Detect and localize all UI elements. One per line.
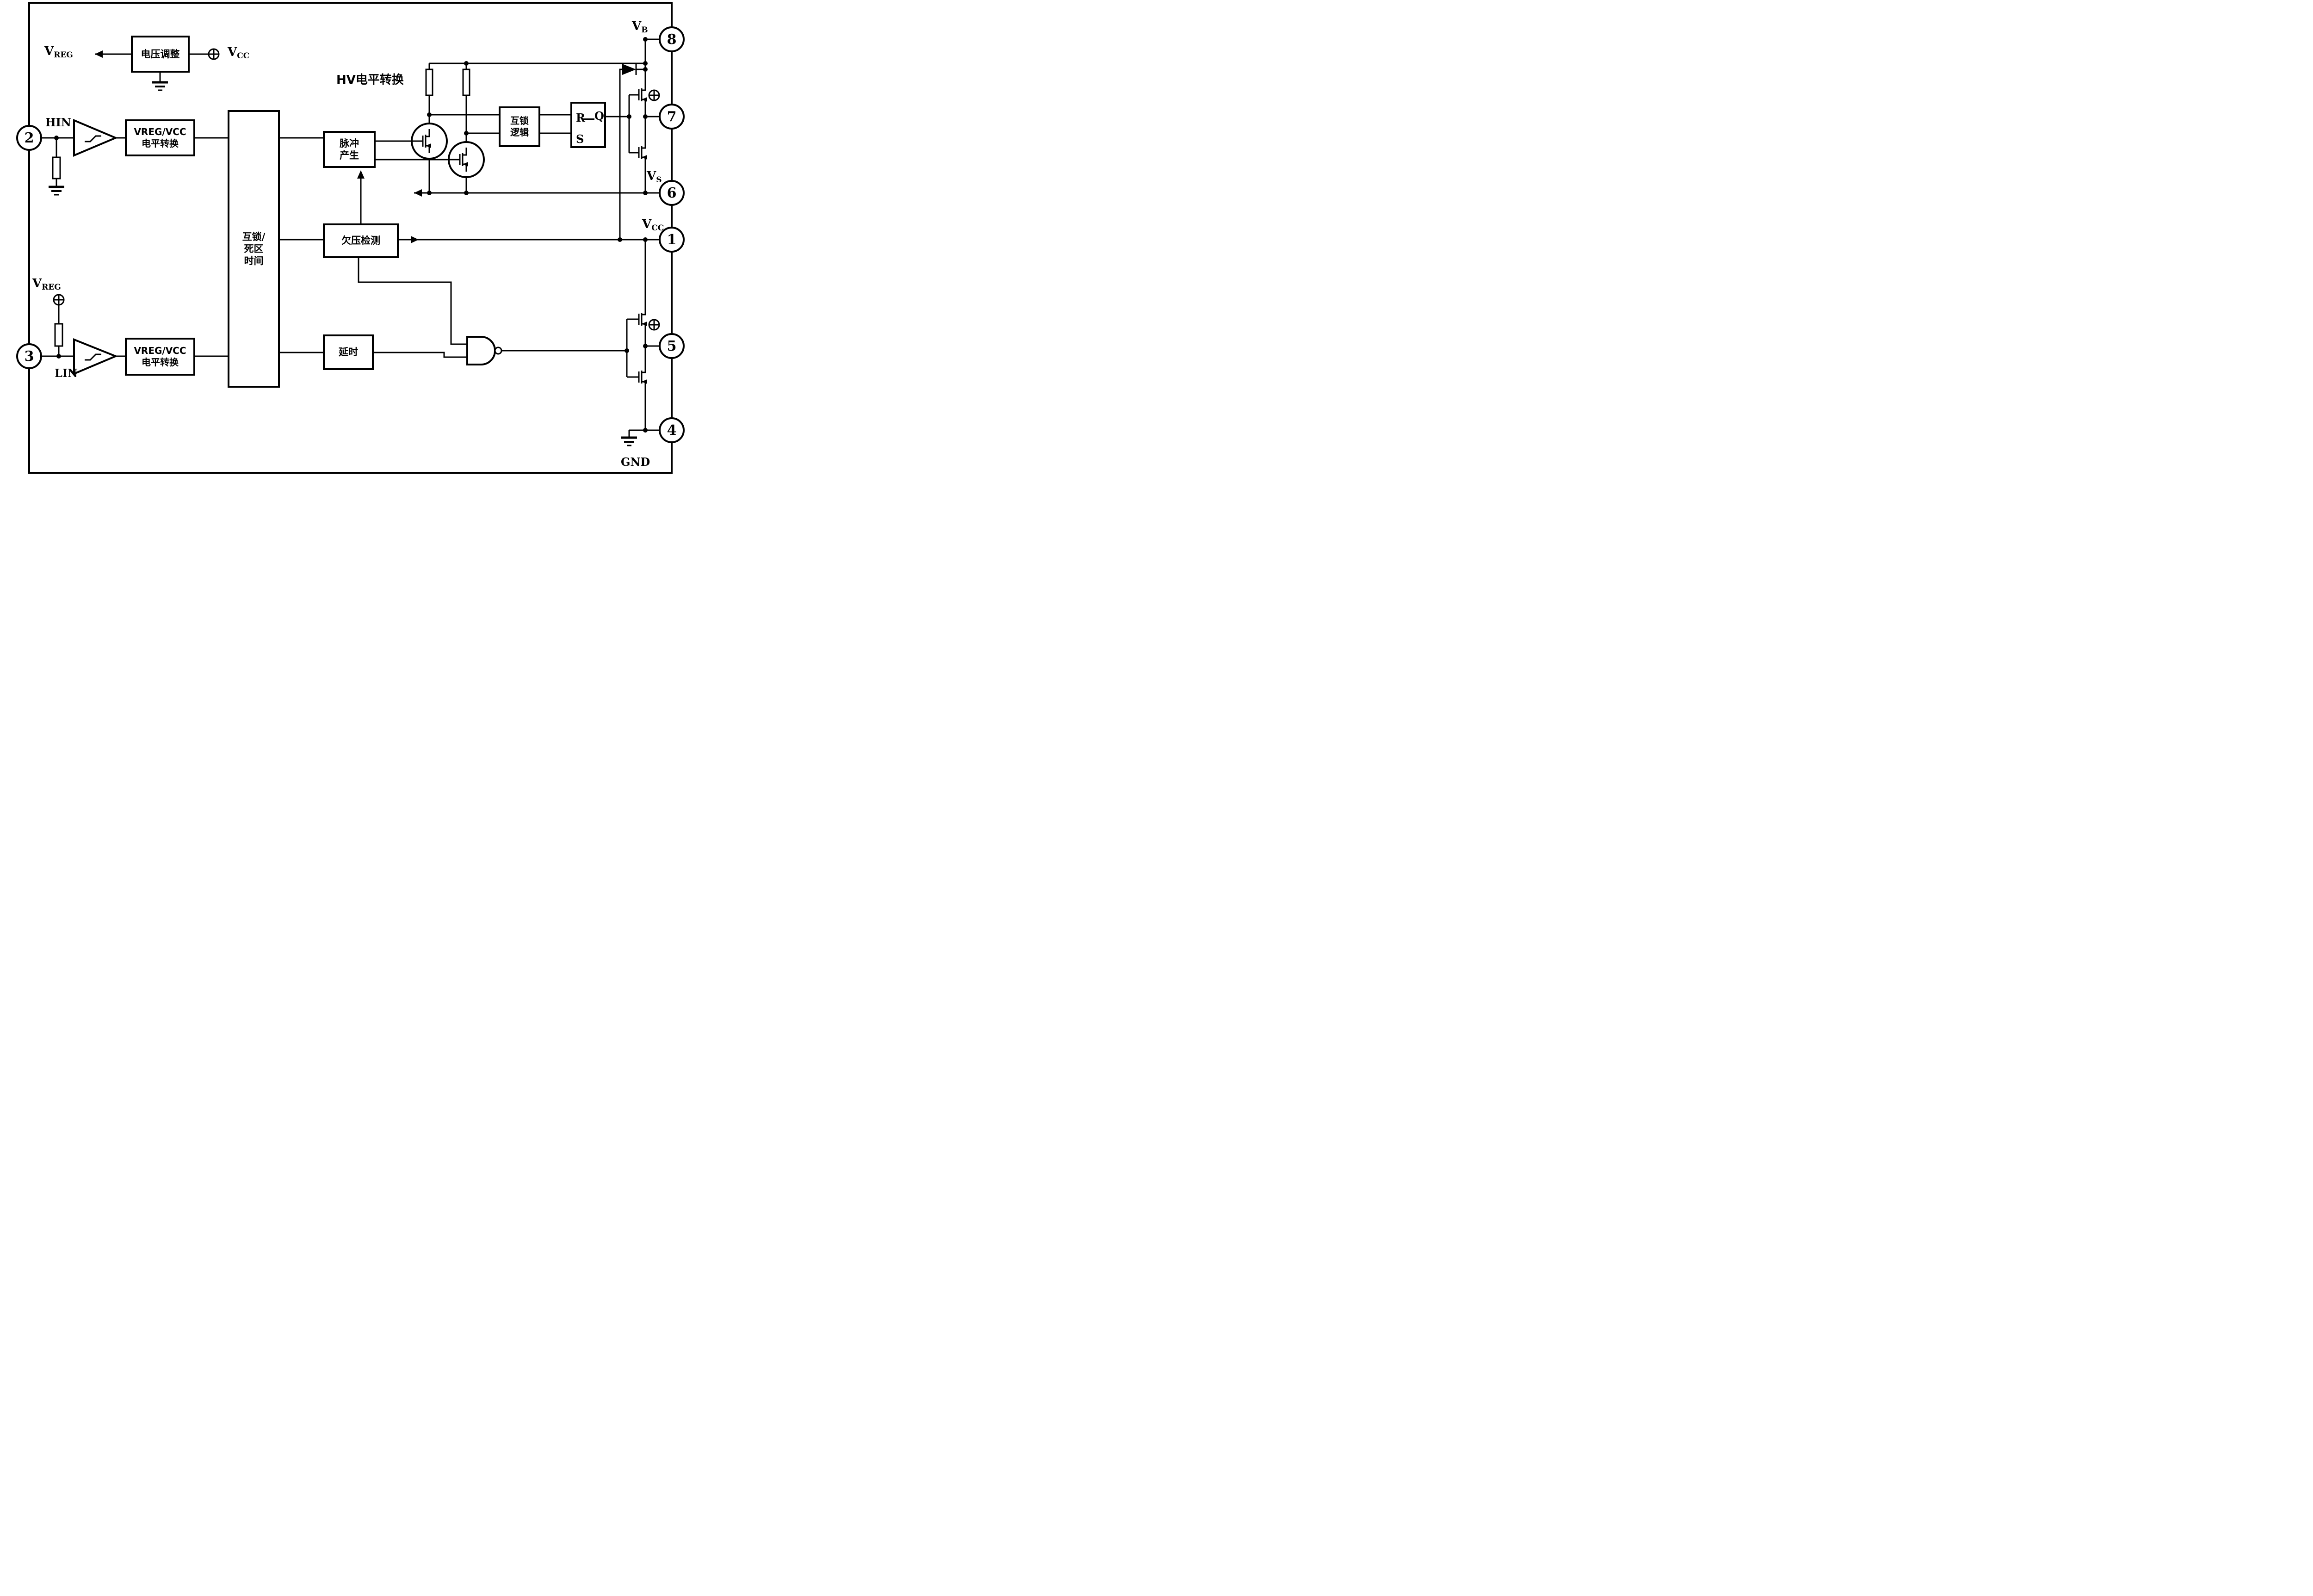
pin-number: 8 — [667, 31, 677, 48]
label-base: V — [32, 277, 42, 291]
pin-number: 1 — [667, 232, 677, 248]
label-base: V — [228, 45, 237, 59]
block-voltage-regulator: 电压调整 — [131, 36, 190, 73]
latch-q-label: Q — [594, 109, 604, 123]
label-sub: REG — [42, 283, 61, 292]
terminal-icon — [649, 320, 659, 330]
vcc-label-right: VCC — [642, 217, 664, 233]
label-sub: CC — [237, 51, 249, 61]
block-label: 脉冲 — [340, 137, 359, 149]
schmitt-trigger-icon — [74, 340, 116, 374]
label-sub: S — [656, 175, 662, 185]
arrowhead-icon — [414, 189, 422, 197]
pin-6: 6 — [659, 180, 685, 206]
block-rs-latch: R Q S — [570, 102, 606, 148]
vreg-label-left: VREG — [32, 277, 61, 292]
pin-number: 4 — [667, 422, 677, 439]
pin-3: 3 — [16, 343, 42, 369]
pin-number: 6 — [667, 185, 677, 201]
block-label: 互锁/ — [242, 231, 266, 243]
block-label: 产生 — [340, 149, 359, 161]
block-label: 时间 — [244, 255, 264, 267]
terminal-icon — [209, 49, 219, 59]
nand-gate-icon — [467, 337, 501, 365]
label-sub: B — [641, 25, 648, 35]
block-level-shift-top: VREG/VCC 电平转换 — [125, 119, 195, 156]
pin-number: 2 — [25, 130, 34, 146]
block-label: 互锁 — [510, 115, 529, 127]
wire — [629, 240, 660, 437]
block-label: 电平转换 — [142, 138, 179, 149]
pin-5: 5 — [659, 333, 685, 359]
pin-7: 7 — [659, 104, 685, 130]
pin-4: 4 — [659, 417, 685, 443]
block-interlock-deadtime: 互锁/ 死区 时间 — [228, 110, 280, 388]
block-pulse-generator: 脉冲 产生 — [323, 131, 376, 168]
diode-icon — [622, 64, 636, 75]
label-sub: REG — [54, 50, 73, 60]
pin-number: 7 — [667, 109, 677, 125]
mosfet-icon — [639, 141, 647, 165]
pin-8: 8 — [659, 26, 685, 52]
latch-s-label: S — [576, 132, 584, 146]
resistor-icon — [463, 69, 470, 95]
label-base: V — [642, 217, 651, 231]
arrowhead-icon — [357, 170, 365, 179]
wire — [414, 159, 660, 193]
block-label: 逻辑 — [510, 127, 529, 138]
wire — [359, 258, 467, 344]
label-base: V — [632, 19, 641, 33]
wire — [501, 319, 639, 377]
label-base: V — [44, 44, 54, 58]
mosfet-icon — [639, 365, 647, 389]
block-level-shift-bottom: VREG/VCC 电平转换 — [125, 338, 195, 376]
ground-icon — [621, 438, 637, 445]
vreg-label-top: VREG — [44, 44, 73, 60]
block-delay: 延时 — [323, 334, 374, 370]
resistor-icon — [53, 157, 60, 179]
ground-icon — [49, 187, 64, 195]
terminal-icon — [54, 295, 64, 305]
block-label: VREG/VCC — [134, 345, 186, 357]
wire — [429, 115, 499, 133]
pin-number: 3 — [25, 348, 34, 365]
terminal-icon — [649, 90, 659, 100]
block-diagram: 电压调整 VREG/VCC 电平转换 VREG/VCC 电平转换 互锁/ 死区 … — [0, 0, 725, 480]
block-label: 死区 — [244, 243, 264, 255]
lin-label: LIN — [55, 366, 78, 380]
label-base: V — [647, 169, 656, 183]
block-label: 电平转换 — [142, 357, 179, 368]
block-undervoltage-detect: 欠压检测 — [323, 223, 399, 258]
pin-number: 5 — [667, 338, 677, 354]
vs-label: VS — [647, 169, 662, 185]
block-label: VREG/VCC — [134, 126, 186, 138]
mosfet-icon — [639, 83, 647, 107]
hv-level-shift-note: HV电平转换 — [324, 70, 416, 87]
mosfet-icon — [639, 307, 647, 331]
schmitt-trigger-icon — [74, 120, 116, 155]
block-label: 欠压检测 — [341, 235, 380, 247]
arrowhead-icon — [95, 50, 103, 58]
ground-icon — [152, 82, 168, 90]
pin-2: 2 — [16, 125, 42, 151]
resistor-icon — [426, 69, 433, 95]
block-interlock-logic: 互锁 逻辑 — [499, 106, 540, 147]
latch-dash — [583, 118, 594, 120]
gnd-label: GND — [621, 455, 650, 469]
latch-r-label: R — [576, 111, 585, 125]
vb-label: VB — [632, 19, 648, 35]
vcc-label-top: VCC — [228, 45, 249, 61]
resistor-icon — [55, 324, 62, 346]
hin-label: HIN — [45, 116, 71, 129]
block-label: 延时 — [339, 346, 358, 358]
pin-1: 1 — [659, 227, 685, 253]
block-label: 电压调整 — [141, 48, 180, 60]
arrowhead-icon — [411, 236, 419, 243]
